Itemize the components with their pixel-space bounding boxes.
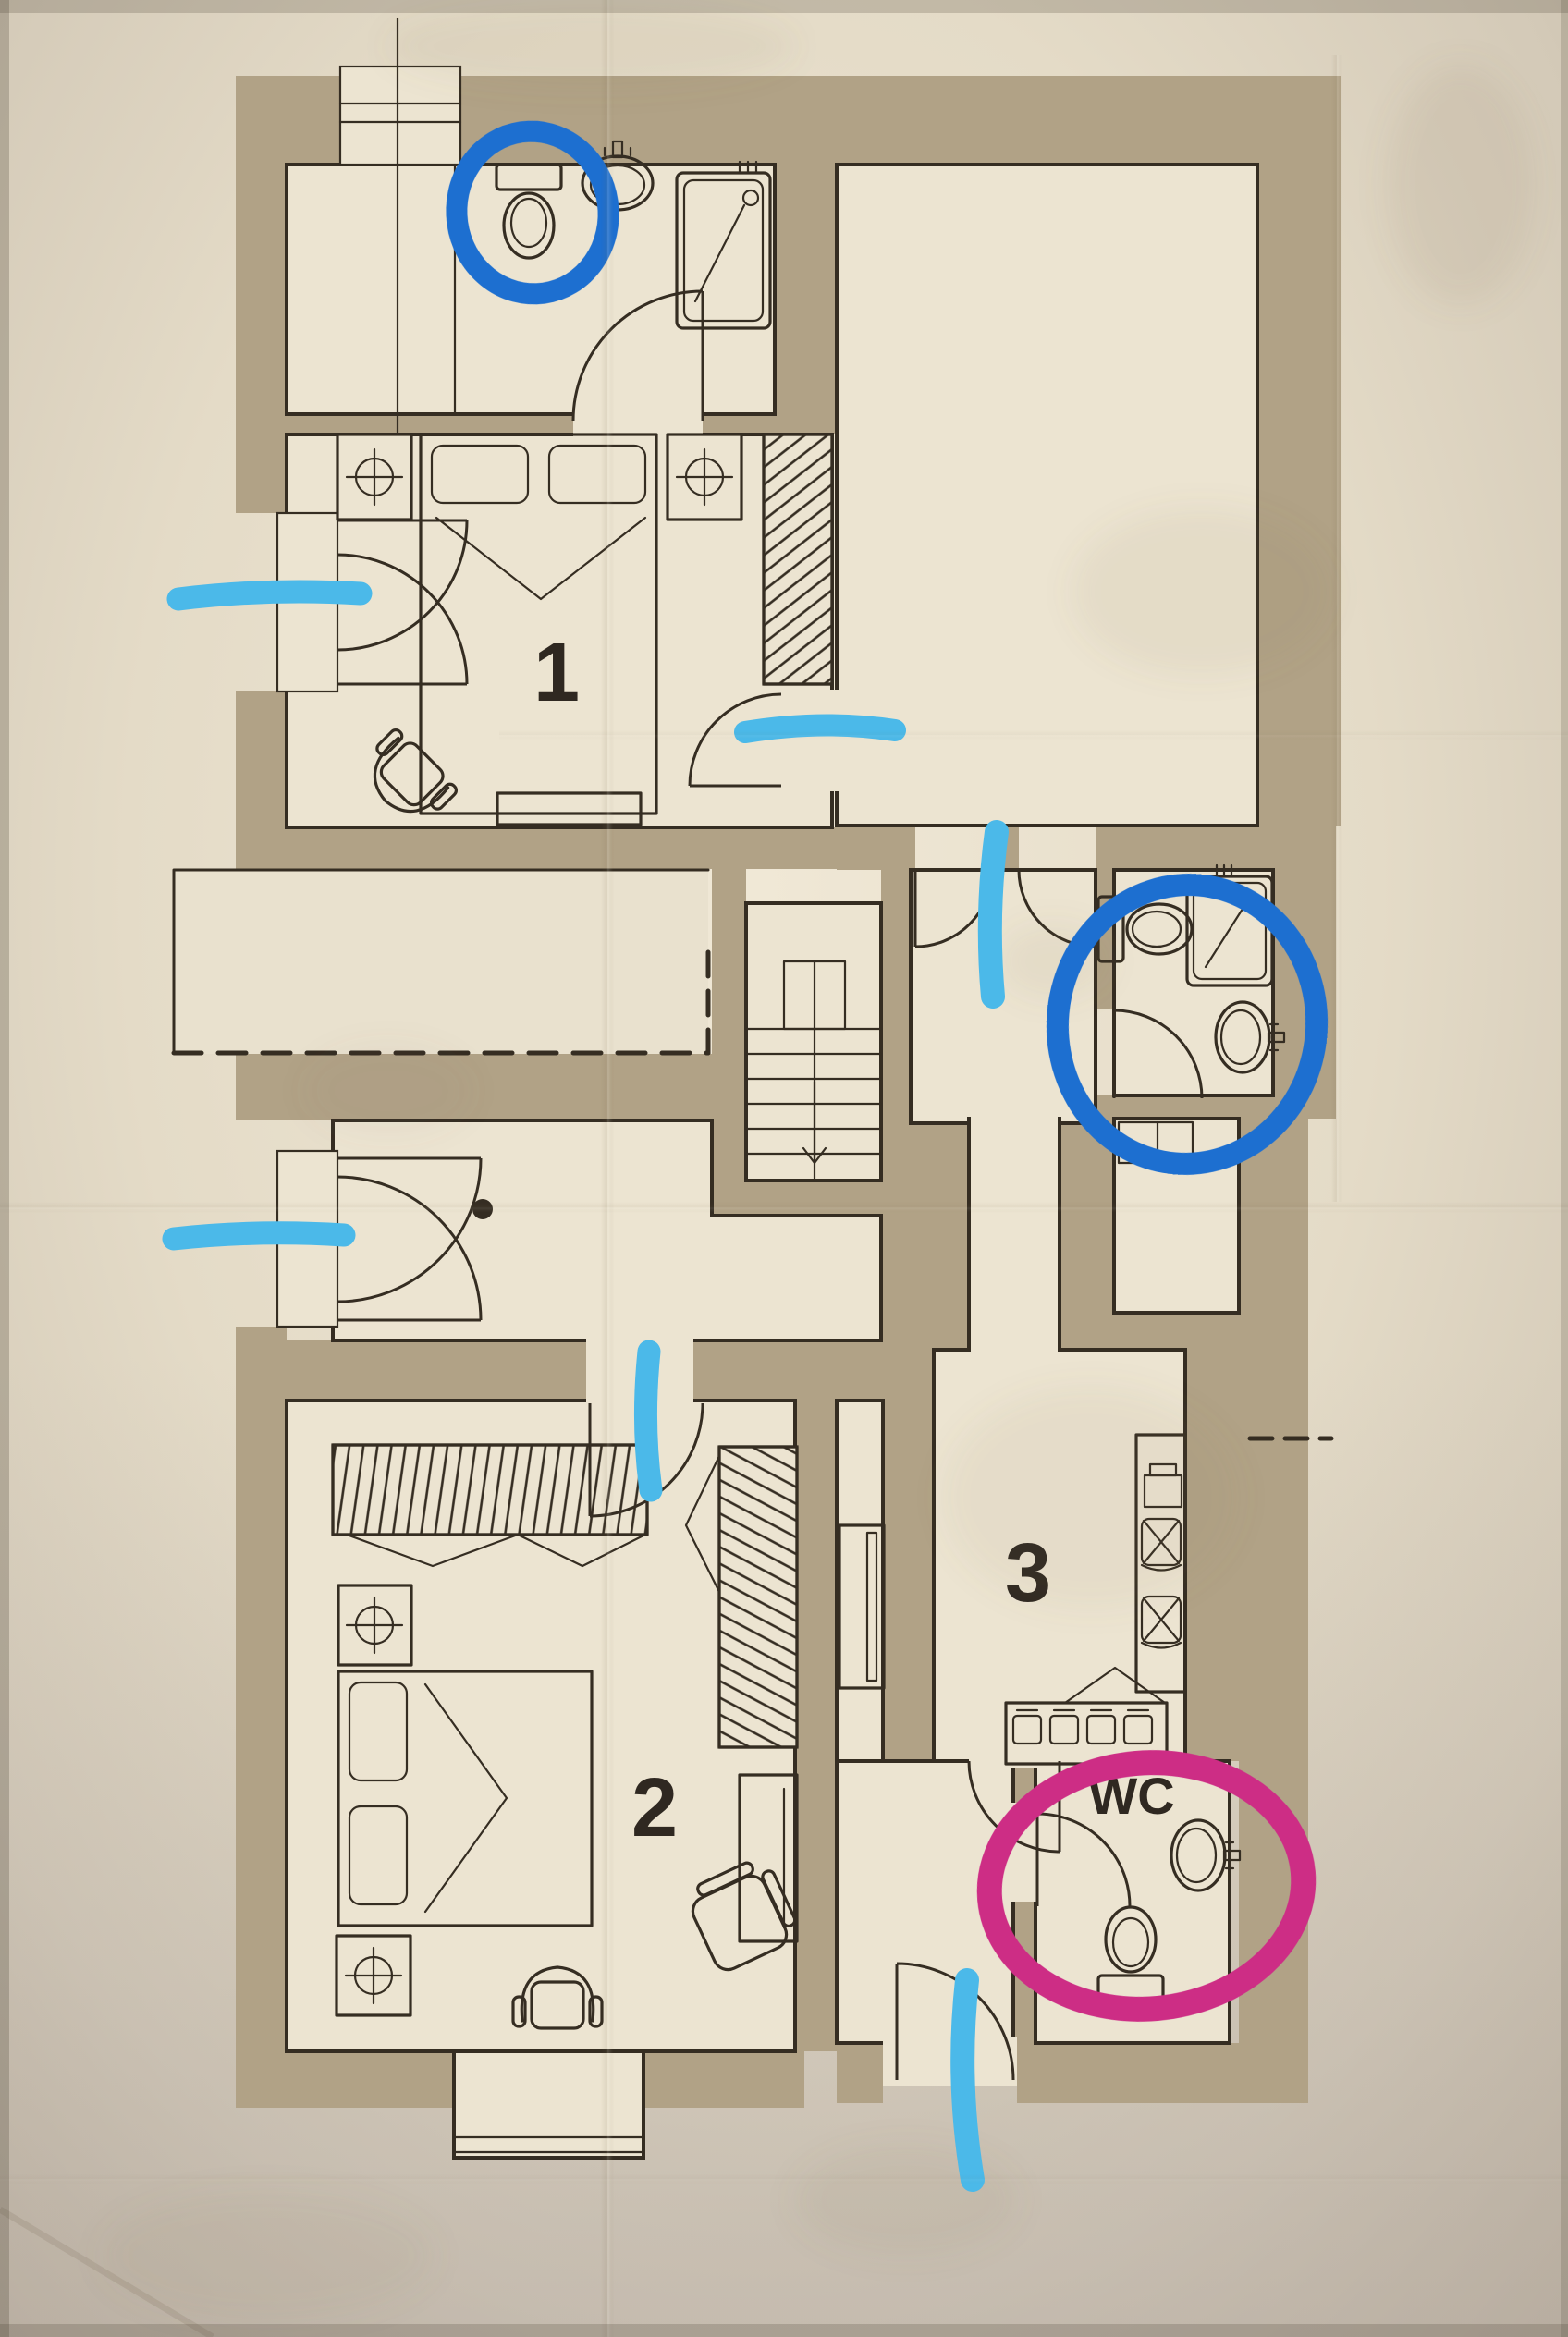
cyan-stroke-vestibule-door — [990, 832, 997, 997]
cyan-stroke-hall-balcony-door — [174, 1233, 344, 1239]
terrace-dashed-boundary — [174, 869, 708, 1054]
room-1-label: 1 — [533, 627, 580, 719]
cyan-stroke-entry-door — [962, 1980, 973, 2180]
room-corridor — [969, 1119, 1060, 1354]
floor-plan-image: 1 2 3 WC — [0, 0, 1568, 2337]
room-2-label: 2 — [631, 1762, 678, 1854]
cyan-stroke-bedroom-1-balcony-door — [178, 592, 361, 599]
shaft — [340, 67, 460, 165]
floor-plan-photo: 1 2 3 WC — [0, 0, 1568, 2337]
cyan-stroke-bedroom-2-door — [645, 1352, 651, 1490]
bay-window-icon — [454, 2051, 643, 2158]
